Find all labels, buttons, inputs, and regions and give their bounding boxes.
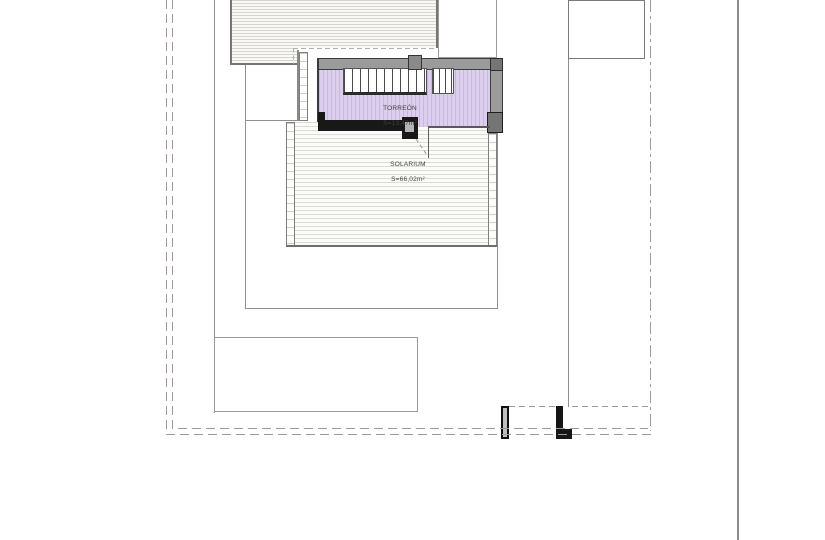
site-plan-canvas: TORREÓN S=13,47m² SOLARIUM S=66,02m² (0, 0, 825, 540)
property-boundary-inner (173, 0, 649, 429)
dashed-linework (0, 0, 825, 540)
door-swing-dash (416, 139, 427, 155)
property-boundary-outer (167, 0, 653, 435)
